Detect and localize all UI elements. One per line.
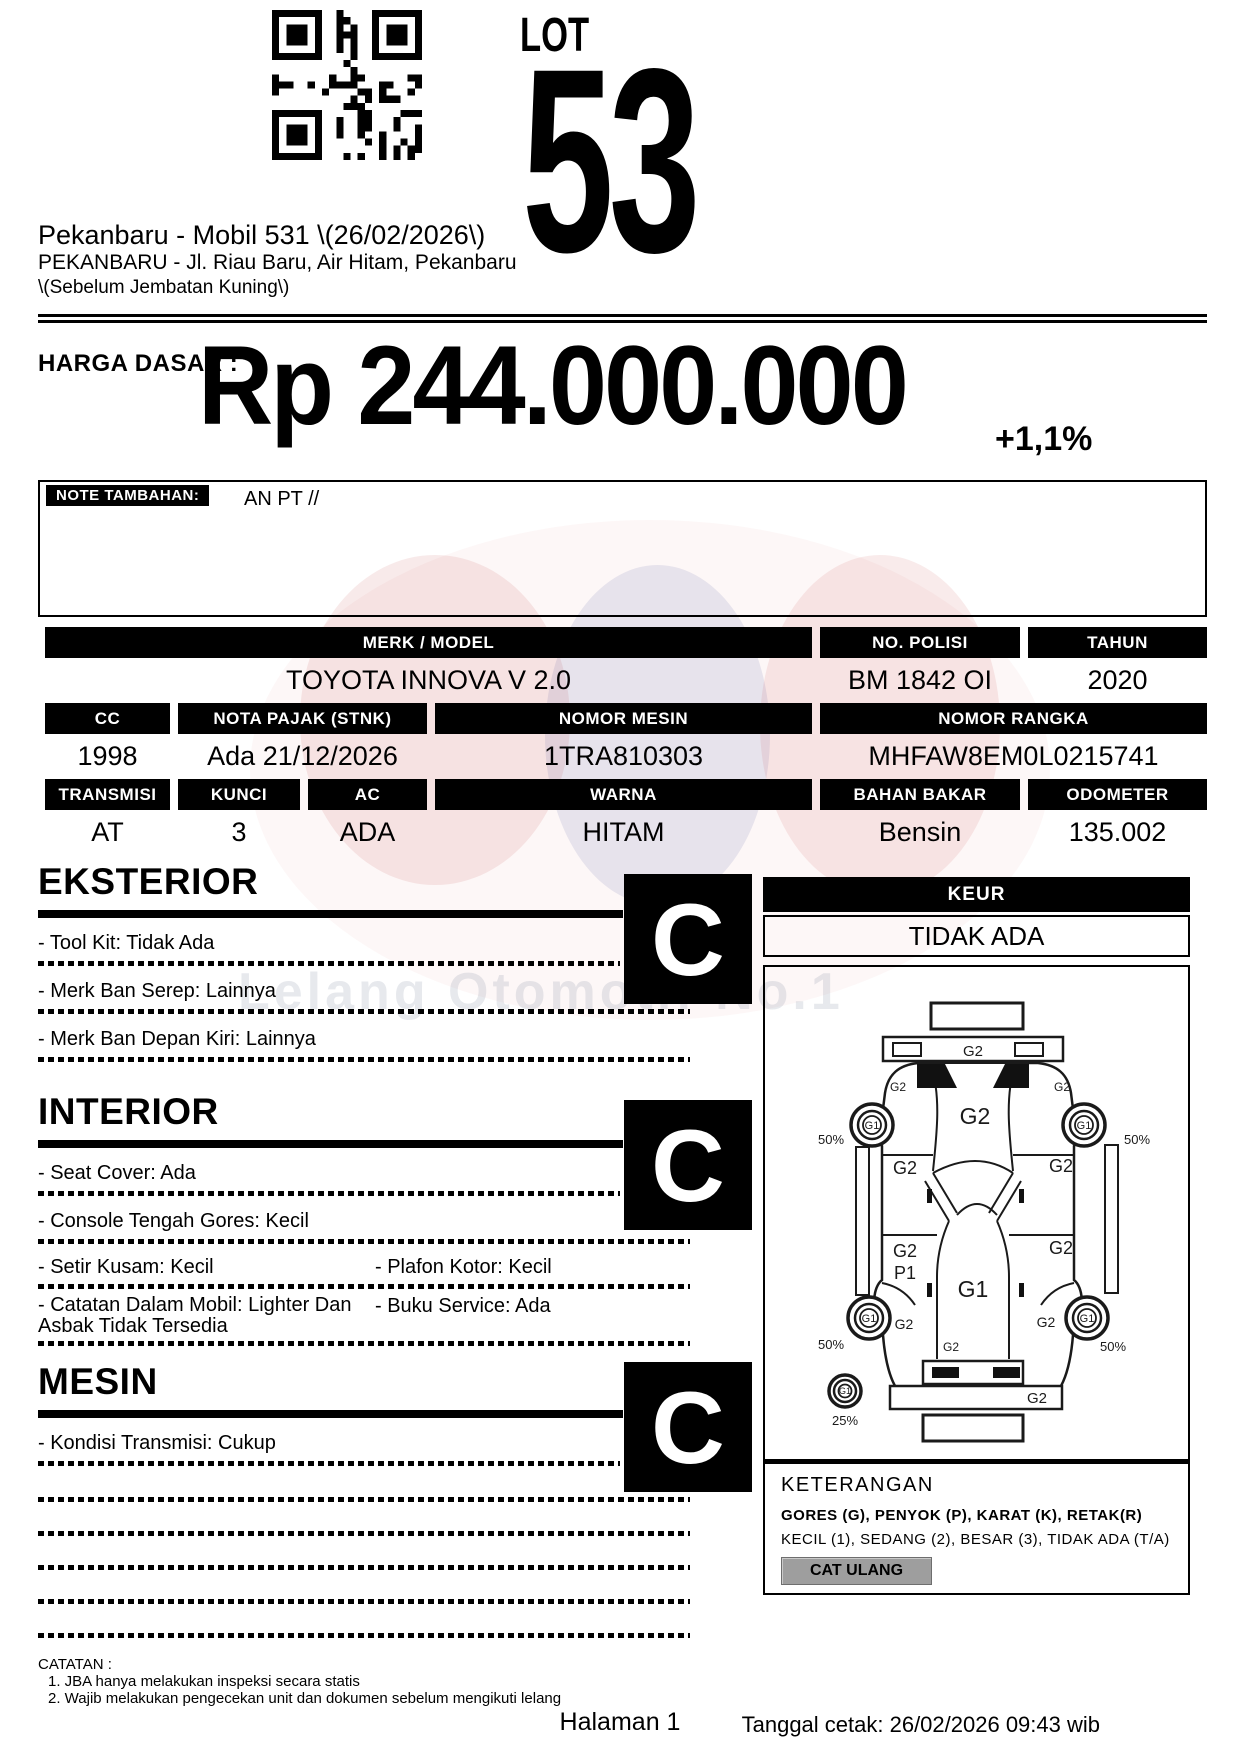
label-pct-rear-right: 50% bbox=[1124, 1132, 1150, 1147]
interior-item: - Console Tengah Gores: Kecil bbox=[38, 1210, 690, 1233]
value-ac: ADA bbox=[308, 814, 427, 848]
eksterior-title: EKSTERIOR bbox=[38, 862, 690, 902]
label-pillar-rear-right: G2 bbox=[1054, 1080, 1070, 1094]
keur-value: TIDAK ADA bbox=[763, 915, 1190, 957]
header-merk-model: MERK / MODEL bbox=[45, 627, 812, 658]
wheel-spare: G1 bbox=[829, 1375, 861, 1407]
dotted-divider bbox=[38, 1461, 620, 1466]
svg-text:G1: G1 bbox=[1080, 1313, 1095, 1325]
value-nomor-mesin: 1TRA810303 bbox=[435, 738, 812, 772]
value-nomor-rangka: MHFAW8EM0L0215741 bbox=[820, 738, 1207, 772]
spec-table: MERK / MODEL NO. POLISI TAHUN TOYOTA INN… bbox=[45, 627, 1207, 848]
header-tahun: TAHUN bbox=[1028, 627, 1207, 658]
svg-text:G1: G1 bbox=[1077, 1120, 1092, 1132]
dotted-divider bbox=[38, 1531, 690, 1536]
svg-text:G1: G1 bbox=[862, 1313, 877, 1325]
rear-plate bbox=[931, 1003, 1023, 1029]
value-transmisi: AT bbox=[45, 814, 170, 848]
catatan-item: 1. JBA hanya melakukan inspeksi secara s… bbox=[48, 1673, 561, 1690]
label-pct-front-right: 50% bbox=[1100, 1339, 1126, 1354]
header-kunci: KUNCI bbox=[178, 779, 300, 810]
spec-value-row-3: AT 3 ADA HITAM Bensin 135.002 bbox=[45, 814, 1207, 848]
keur-header: KEUR bbox=[763, 877, 1190, 912]
header-nomor-rangka: NOMOR RANGKA bbox=[820, 703, 1207, 734]
dotted-divider bbox=[38, 1009, 690, 1014]
value-odometer: 135.002 bbox=[1028, 814, 1207, 848]
label-door-left-g: G2 bbox=[893, 1241, 917, 1261]
wheel-rear-right: G1 bbox=[1063, 1104, 1105, 1146]
mesin-grade-badge: C bbox=[624, 1362, 752, 1492]
interior-item: - Seat Cover: Ada bbox=[38, 1162, 690, 1185]
interior-underline bbox=[38, 1140, 623, 1148]
dotted-divider bbox=[38, 1341, 690, 1346]
keterangan-line2: KECIL (1), SEDANG (2), BESAR (3), TIDAK … bbox=[781, 1531, 1172, 1548]
front-plate bbox=[923, 1415, 1023, 1441]
label-bumper: G2 bbox=[1027, 1390, 1047, 1407]
svg-text:G1: G1 bbox=[865, 1120, 880, 1132]
catatan-title: CATATAN : bbox=[38, 1656, 561, 1673]
wheel-rear-left: G1 bbox=[851, 1104, 893, 1146]
section-mesin: MESIN - Kondisi Transmisi: Cukup bbox=[38, 1362, 690, 1638]
dotted-divider bbox=[38, 1565, 690, 1570]
header-no-polisi: NO. POLISI bbox=[820, 627, 1020, 658]
damage-diagram-box: G2 G1 G1 G1 G1 bbox=[763, 965, 1190, 1463]
label-door-right: G2 bbox=[1049, 1238, 1073, 1258]
value-warna: HITAM bbox=[435, 814, 812, 848]
header-cc: CC bbox=[45, 703, 170, 734]
base-price-value: Rp 244.000.000 bbox=[198, 330, 906, 442]
spec-value-row-1: TOYOTA INNOVA V 2.0 BM 1842 OI 2020 bbox=[45, 662, 1207, 696]
interior-item: - Setir Kusam: Kecil bbox=[38, 1256, 365, 1278]
value-tahun: 2020 bbox=[1028, 662, 1207, 696]
spec-header-row-3: TRANSMISI KUNCI AC WARNA BAHAN BAKAR ODO… bbox=[45, 779, 1207, 810]
note-box: NOTE TAMBAHAN: AN PT // bbox=[38, 480, 1207, 617]
svg-text:G1: G1 bbox=[839, 1386, 851, 1396]
header-bahan-bakar: BAHAN BAKAR bbox=[820, 779, 1020, 810]
interior-title: INTERIOR bbox=[38, 1092, 690, 1132]
wheel-front-left: G1 bbox=[848, 1297, 890, 1339]
cat-ulang-badge: CAT ULANG bbox=[781, 1557, 932, 1585]
header-odometer: ODOMETER bbox=[1028, 779, 1207, 810]
label-pct-front-left: 50% bbox=[818, 1337, 844, 1352]
header-nomor-mesin: NOMOR MESIN bbox=[435, 703, 812, 734]
catatan-block: CATATAN : 1. JBA hanya melakukan inspeks… bbox=[38, 1656, 561, 1707]
label-fender-front-right: G2 bbox=[1037, 1314, 1056, 1330]
interior-item: - Catatan Dalam Mobil: Lighter Dan Asbak… bbox=[38, 1295, 365, 1337]
interior-item: - Buku Service: Ada bbox=[375, 1295, 690, 1337]
wheel-front-right: G1 bbox=[1066, 1297, 1108, 1339]
mesin-title: MESIN bbox=[38, 1362, 690, 1402]
eksterior-item: - Merk Ban Serep: Lainnya bbox=[38, 980, 690, 1003]
separator-top bbox=[38, 314, 1207, 317]
label-quarter-left: G2 bbox=[893, 1158, 917, 1178]
header-warna: WARNA bbox=[435, 779, 812, 810]
section-eksterior: EKSTERIOR - Tool Kit: Tidak Ada - Merk B… bbox=[38, 862, 690, 1062]
interior-item: - Plafon Kotor: Kecil bbox=[375, 1256, 690, 1278]
label-cowl: G2 bbox=[943, 1340, 959, 1354]
value-no-polisi: BM 1842 OI bbox=[820, 662, 1020, 696]
auction-title: Pekanbaru - Mobil 531 \(26/02/2026\) bbox=[38, 220, 517, 250]
value-bahan-bakar: Bensin bbox=[820, 814, 1020, 848]
note-label: NOTE TAMBAHAN: bbox=[46, 485, 209, 506]
interior-item-pair: - Catatan Dalam Mobil: Lighter Dan Asbak… bbox=[38, 1289, 690, 1337]
keterangan-title: KETERANGAN bbox=[781, 1474, 1172, 1497]
mesin-underline bbox=[38, 1410, 623, 1418]
catatan-item: 2. Wajib melakukan pengecekan unit dan d… bbox=[48, 1690, 561, 1707]
spec-header-row-1: MERK / MODEL NO. POLISI TAHUN bbox=[45, 627, 1207, 658]
mesin-item: - Kondisi Transmisi: Cukup bbox=[38, 1432, 690, 1455]
dotted-divider bbox=[38, 961, 620, 966]
value-merk-model: TOYOTA INNOVA V 2.0 bbox=[45, 662, 812, 696]
print-timestamp: Tanggal cetak: 26/02/2026 09:43 wib bbox=[742, 1712, 1100, 1738]
spec-value-row-2: 1998 Ada 21/12/2026 1TRA810303 MHFAW8EM0… bbox=[45, 738, 1207, 772]
note-value: AN PT // bbox=[244, 488, 319, 511]
eksterior-item: - Tool Kit: Tidak Ada bbox=[38, 932, 690, 955]
label-pct-spare: 25% bbox=[832, 1413, 858, 1428]
eksterior-item: - Merk Ban Depan Kiri: Lainnya bbox=[38, 1028, 690, 1051]
label-quarter-right: G2 bbox=[1049, 1156, 1073, 1176]
eksterior-underline bbox=[38, 910, 623, 918]
dotted-divider bbox=[38, 1599, 690, 1604]
label-fender-front-left: G2 bbox=[895, 1316, 914, 1332]
header-ac: AC bbox=[308, 779, 427, 810]
label-pillar-rear-left: G2 bbox=[890, 1080, 906, 1094]
dotted-divider bbox=[38, 1191, 620, 1196]
auction-lot-sheet: Lelang Otomotif No.1 LOT 53 Pekanbaru - … bbox=[0, 0, 1240, 1754]
value-nota-pajak: Ada 21/12/2026 bbox=[178, 738, 427, 772]
header-nota-pajak: NOTA PAJAK (STNK) bbox=[178, 703, 427, 734]
keterangan-line1: GORES (G), PENYOK (P), KARAT (K), RETAK(… bbox=[781, 1507, 1172, 1524]
auction-header: Pekanbaru - Mobil 531 \(26/02/2026\) PEK… bbox=[38, 220, 517, 300]
dotted-divider bbox=[38, 1633, 690, 1638]
dotted-divider bbox=[38, 1497, 690, 1502]
dotted-divider bbox=[38, 1057, 690, 1062]
interior-grade-badge: C bbox=[624, 1100, 752, 1230]
keterangan-box: KETERANGAN GORES (G), PENYOK (P), KARAT … bbox=[763, 1459, 1190, 1595]
section-interior: INTERIOR - Seat Cover: Ada - Console Ten… bbox=[38, 1092, 690, 1346]
label-rear-bar: G2 bbox=[963, 1043, 983, 1060]
spec-header-row-2: CC NOTA PAJAK (STNK) NOMOR MESIN NOMOR R… bbox=[45, 703, 1207, 734]
auction-address-line2: \(Sebelum Jembatan Kuning\) bbox=[38, 276, 517, 300]
qr-code bbox=[272, 10, 422, 160]
label-door-left-p: P1 bbox=[894, 1263, 916, 1283]
value-cc: 1998 bbox=[45, 738, 170, 772]
value-kunci: 3 bbox=[178, 814, 300, 848]
lot-number: 53 bbox=[522, 30, 696, 292]
car-damage-diagram: G2 G1 G1 G1 G1 bbox=[765, 967, 1188, 1461]
auction-address-line1: PEKANBARU - Jl. Riau Baru, Air Hitam, Pe… bbox=[38, 250, 517, 276]
header-transmisi: TRANSMISI bbox=[45, 779, 170, 810]
label-hood: G1 bbox=[958, 1276, 989, 1302]
eksterior-grade-badge: C bbox=[624, 874, 752, 1004]
price-change-percent: +1,1% bbox=[995, 420, 1092, 459]
interior-item-pair: - Setir Kusam: Kecil - Plafon Kotor: Kec… bbox=[38, 1244, 690, 1278]
label-pct-rear-left: 50% bbox=[818, 1132, 844, 1147]
label-roof: G2 bbox=[960, 1103, 991, 1129]
